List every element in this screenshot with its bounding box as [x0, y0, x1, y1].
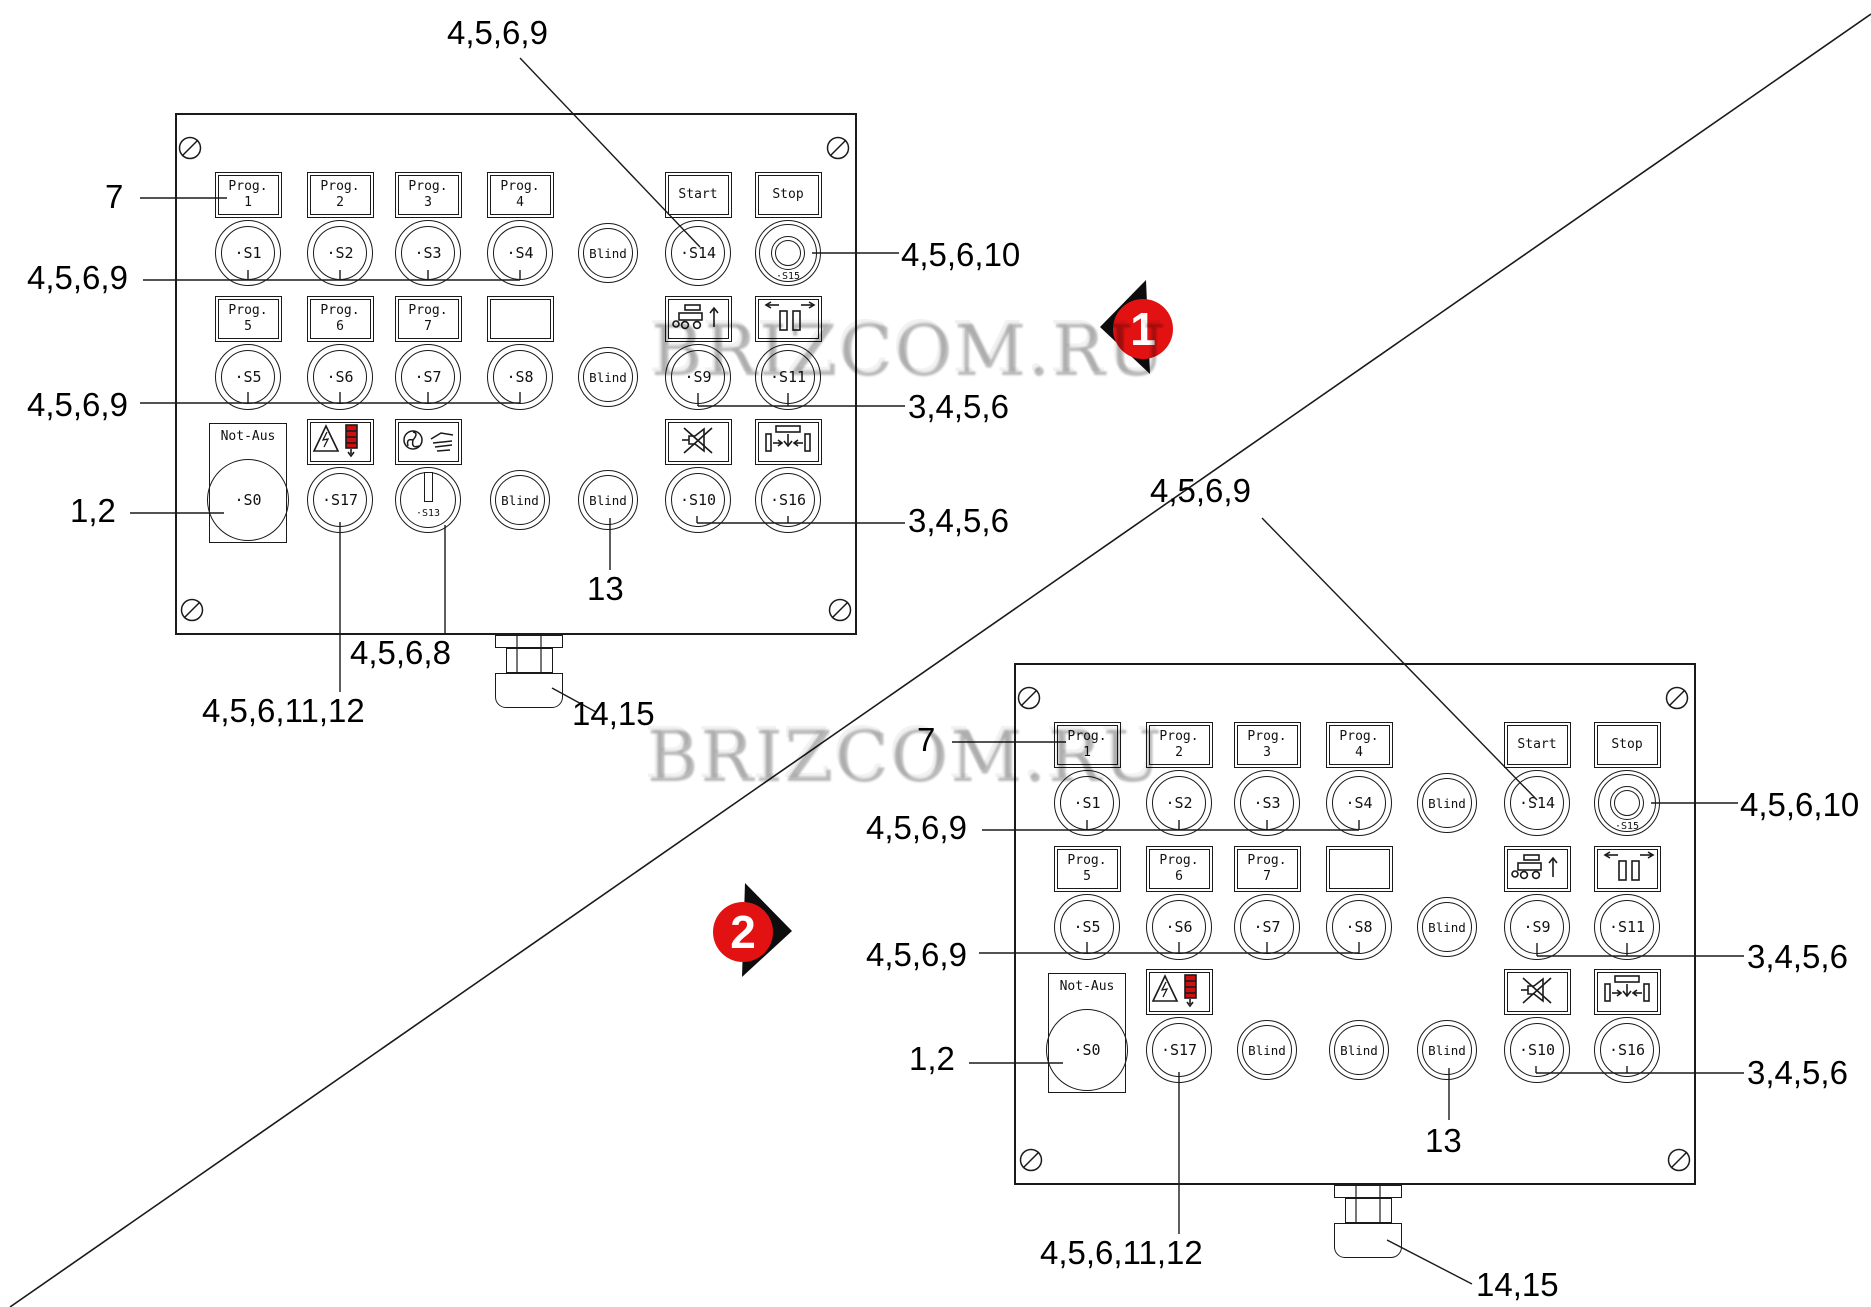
plate-S3-p2: Prog.3: [1234, 722, 1301, 768]
plate-face-S14-p1: Start: [668, 175, 729, 215]
plate-face-S16-p2: [1597, 972, 1658, 1012]
plate-label: 4: [1355, 745, 1363, 761]
button-label-S14-p1: ·S14: [668, 243, 728, 263]
button-label-S11-p2: ·S11: [1597, 917, 1657, 937]
callout-prog-panel1: 7: [105, 180, 123, 215]
plate-face-S4-p1: Prog.4: [490, 175, 551, 215]
plate-S2-p1: Prog.2: [307, 172, 374, 218]
plate-label: 5: [1083, 869, 1091, 885]
plate-S11-p2: [1594, 846, 1661, 892]
plate-label: Start: [1517, 737, 1556, 753]
cable-gland-tier2: [1345, 1198, 1392, 1223]
button-label-S1-p1: ·S1: [218, 243, 278, 263]
plate-face-S8-p1: [490, 299, 551, 339]
plate-label: Prog.: [408, 179, 447, 195]
button-label-S6-p2: ·S6: [1149, 917, 1209, 937]
button-label-S8-p1: ·S8: [490, 367, 550, 387]
button-label-S1-p2: ·S1: [1057, 793, 1117, 813]
plate-S16-p1: [755, 419, 822, 465]
callout-top-panel1: 4,5,6,9: [447, 16, 548, 51]
plate-label: 5: [244, 319, 252, 335]
callout-s17-panel1: 4,5,6,11,12: [202, 694, 365, 729]
plate-face-S15-p2: Stop: [1597, 725, 1658, 765]
plate-label: 7: [1263, 869, 1271, 885]
plate-S6-p1: Prog.6: [307, 296, 374, 342]
callout-row1-panel1: 4,5,6,9: [27, 261, 128, 296]
plate-S13-p1: [395, 419, 462, 465]
button-label-S10-p1: ·S10: [668, 490, 728, 510]
plate-S15-p2: Stop: [1594, 722, 1661, 768]
button-label-S5-p1: ·S5: [218, 367, 278, 387]
plate-label: Prog.: [1159, 729, 1198, 745]
estop-label-S0-p2: ·S0: [1057, 1040, 1117, 1060]
plate-S4-p2: Prog.4: [1326, 722, 1393, 768]
electric-warning-beacon-icon: [312, 422, 368, 462]
plate-S8-p2: [1326, 846, 1393, 892]
parts-diagram: 12 BRIZCOM.RU BRIZCOM.RU Prog.1·S1Prog.2…: [0, 0, 1871, 1307]
plate-label: 6: [1175, 869, 1183, 885]
plate-S17-p1: [307, 419, 374, 465]
callout-row1-panel2: 4,5,6,9: [866, 811, 967, 846]
button-label-S4-p2: ·S4: [1329, 793, 1389, 813]
button-label-S7-p1: ·S7: [398, 367, 458, 387]
plate-S6-p2: Prog.6: [1146, 846, 1213, 892]
marker-circle: [713, 902, 773, 962]
plate-face-S17-p2: [1149, 972, 1210, 1012]
plate-label: Prog.: [500, 179, 539, 195]
estop-plate-label: Not-Aus: [210, 429, 286, 444]
plate-face-S15-p1: Stop: [758, 175, 819, 215]
blind-label-blind-p1: Blind: [580, 244, 636, 262]
plate-label: Prog.: [1067, 853, 1106, 869]
button-label-S4-p1: ·S4: [490, 243, 550, 263]
plate-label: Start: [678, 187, 717, 203]
mushroom-cap-S15-p2: [1614, 790, 1640, 816]
blind-label-blind-p1: Blind: [580, 491, 636, 509]
watermark-2: BRIZCOM.RU: [644, 712, 1161, 794]
plate-face-S5-p1: Prog.5: [218, 299, 279, 339]
callout-top-panel2: 4,5,6,9: [1150, 474, 1251, 509]
plate-face-S9-p2: [1507, 849, 1568, 889]
callout-row2-panel2: 4,5,6,9: [866, 938, 967, 973]
button-label-S7-p2: ·S7: [1237, 917, 1297, 937]
plate-label: 3: [1263, 745, 1271, 761]
plate-face-S3-p1: Prog.3: [398, 175, 459, 215]
button-label-S2-p2: ·S2: [1149, 793, 1209, 813]
plate-S5-p2: Prog.5: [1054, 846, 1121, 892]
callout-estop-panel2: 1,2: [909, 1042, 955, 1077]
blind-label-blind-p2: Blind: [1239, 1041, 1295, 1059]
plate-face-S3-p2: Prog.3: [1237, 725, 1298, 765]
plate-S5-p1: Prog.5: [215, 296, 282, 342]
plate-face-S1-p1: Prog.1: [218, 175, 279, 215]
callout-r2right-panel1: 3,4,5,6: [908, 390, 1009, 425]
blind-label-blind-p1: Blind: [492, 491, 548, 509]
plate-face-S2-p1: Prog.2: [310, 175, 371, 215]
plate-S1-p1: Prog.1: [215, 172, 282, 218]
plate-label: 3: [424, 195, 432, 211]
plate-S7-p2: Prog.7: [1234, 846, 1301, 892]
plate-label: 2: [1175, 745, 1183, 761]
plate-S16-p2: [1594, 969, 1661, 1015]
callout-r3right-panel2: 3,4,5,6: [1747, 1056, 1848, 1091]
cable-gland-body: [1334, 1223, 1402, 1258]
plate-label: Prog.: [408, 303, 447, 319]
watermark-1: BRIZCOM.RU: [648, 306, 1165, 388]
plate-label: Prog.: [1159, 853, 1198, 869]
callout-estop-panel1: 1,2: [70, 494, 116, 529]
plate-label: Prog.: [1247, 853, 1286, 869]
marker-arrow-icon: [742, 883, 792, 977]
callout-gland-panel2: 14,15: [1476, 1268, 1559, 1303]
button-label-S16-p2: ·S16: [1597, 1040, 1657, 1060]
plate-face-S6-p2: Prog.6: [1149, 849, 1210, 889]
plate-label: Prog.: [320, 303, 359, 319]
cable-gland-tier1: [1334, 1185, 1402, 1198]
button-label-S10-p2: ·S10: [1507, 1040, 1567, 1060]
marker-number: 2: [730, 906, 756, 958]
plate-S15-p1: Stop: [755, 172, 822, 218]
blind-label-blind-p2: Blind: [1419, 1041, 1475, 1059]
press-down-icon: [1599, 973, 1655, 1011]
callout-row2-panel1: 4,5,6,9: [27, 388, 128, 423]
plate-face-S10-p1: [668, 422, 729, 462]
callout-s13-panel1: 4,5,6,8: [350, 636, 451, 671]
blind-label-blind-p1: Blind: [580, 368, 636, 386]
button-label-S3-p2: ·S3: [1237, 793, 1297, 813]
plate-label: Prog.: [1247, 729, 1286, 745]
plate-S10-p2: [1504, 969, 1571, 1015]
rotary-label-S13-p1: ·S13: [405, 507, 451, 519]
mute-horn-icon: [1515, 973, 1559, 1011]
callout-stop-panel2: 4,5,6,10: [1740, 788, 1859, 823]
cart-up-icon: [1509, 850, 1565, 888]
estop-plate-label: Not-Aus: [1049, 979, 1125, 994]
plate-face-S7-p2: Prog.7: [1237, 849, 1298, 889]
plate-face-S6-p1: Prog.6: [310, 299, 371, 339]
cable-gland-body: [495, 673, 563, 708]
plate-face-S14-p2: Start: [1507, 725, 1568, 765]
plate-label: Stop: [1611, 737, 1642, 753]
mushroom-cap-S15-p1: [775, 240, 801, 266]
plate-face-S5-p2: Prog.5: [1057, 849, 1118, 889]
press-down-icon: [760, 423, 816, 461]
plate-face-S17-p1: [310, 422, 371, 462]
callout-r2right-panel2: 3,4,5,6: [1747, 940, 1848, 975]
electric-warning-beacon-icon: [1151, 972, 1207, 1012]
plate-label: 2: [336, 195, 344, 211]
plate-face-S4-p2: Prog.4: [1329, 725, 1390, 765]
estop-label-S0-p1: ·S0: [218, 490, 278, 510]
callout-s17-panel2: 4,5,6,11,12: [1040, 1236, 1203, 1271]
blind-label-blind-p2: Blind: [1331, 1041, 1387, 1059]
plate-S14-p2: Start: [1504, 722, 1571, 768]
fan-hand-icon: [400, 423, 456, 461]
mushroom-label-S15-p1: ·S15: [765, 270, 811, 282]
button-label-S2-p1: ·S2: [310, 243, 370, 263]
plate-label: 6: [336, 319, 344, 335]
plate-face-S16-p1: [758, 422, 819, 462]
button-label-S14-p2: ·S14: [1507, 793, 1567, 813]
plate-face-S8-p2: [1329, 849, 1390, 889]
blind-label-blind-p2: Blind: [1419, 918, 1475, 936]
plate-label: 7: [424, 319, 432, 335]
plate-label: Prog.: [320, 179, 359, 195]
callout-r3right-panel1: 3,4,5,6: [908, 504, 1009, 539]
plate-label: 1: [244, 195, 252, 211]
plate-S10-p1: [665, 419, 732, 465]
button-label-S17-p1: ·S17: [310, 490, 370, 510]
rotary-slot-S13-p1: [424, 472, 433, 502]
plate-S8-p1: [487, 296, 554, 342]
plate-face-S11-p2: [1597, 849, 1658, 889]
button-label-S16-p1: ·S16: [758, 490, 818, 510]
cable-gland-tier2: [506, 648, 553, 673]
blind-label-blind-p2: Blind: [1419, 794, 1475, 812]
spread-open-icon: [1599, 850, 1655, 888]
plate-label: Prog.: [228, 303, 267, 319]
button-label-S5-p2: ·S5: [1057, 917, 1117, 937]
button-label-S17-p2: ·S17: [1149, 1040, 1209, 1060]
plate-S3-p1: Prog.3: [395, 172, 462, 218]
button-label-S3-p1: ·S3: [398, 243, 458, 263]
plate-S9-p2: [1504, 846, 1571, 892]
callout-gland-panel1: 14,15: [572, 697, 655, 732]
callout-blind13-panel2: 13: [1425, 1124, 1462, 1159]
mushroom-label-S15-p2: ·S15: [1604, 820, 1650, 832]
plate-S14-p1: Start: [665, 172, 732, 218]
plate-S17-p2: [1146, 969, 1213, 1015]
plate-S4-p1: Prog.4: [487, 172, 554, 218]
button-label-S8-p2: ·S8: [1329, 917, 1389, 937]
plate-label: Prog.: [1339, 729, 1378, 745]
plate-S7-p1: Prog.7: [395, 296, 462, 342]
button-label-S9-p2: ·S9: [1507, 917, 1567, 937]
plate-face-S13-p1: [398, 422, 459, 462]
plate-label: 4: [516, 195, 524, 211]
plate-face-S10-p2: [1507, 972, 1568, 1012]
callout-blind13-panel1: 13: [587, 572, 624, 607]
cable-gland-tier1: [495, 635, 563, 648]
plate-label: Stop: [772, 187, 803, 203]
plate-face-S7-p1: Prog.7: [398, 299, 459, 339]
plate-label: Prog.: [228, 179, 267, 195]
callout-stop-panel1: 4,5,6,10: [901, 238, 1020, 273]
button-label-S6-p1: ·S6: [310, 367, 370, 387]
mute-horn-icon: [676, 423, 720, 461]
